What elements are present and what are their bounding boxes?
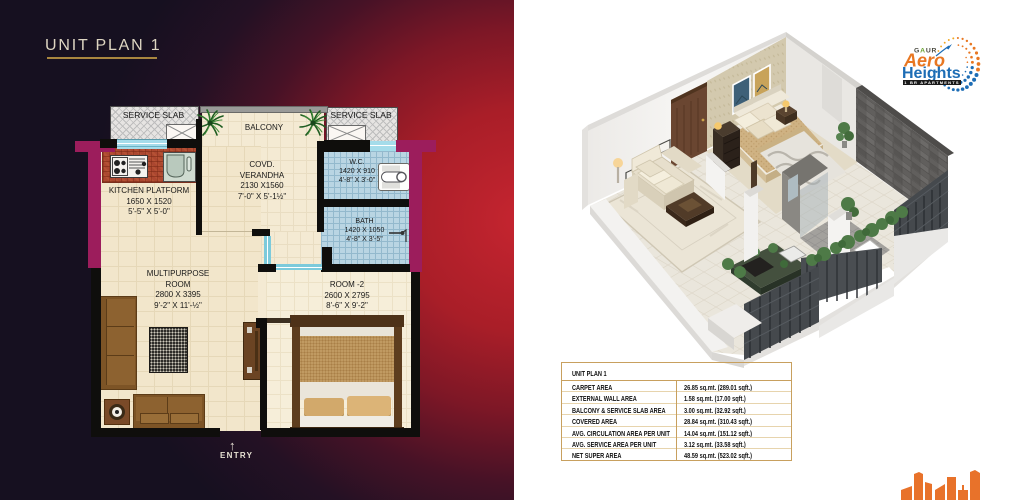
svg-text:1 BR APARTMENTS: 1 BR APARTMENTS — [904, 80, 960, 85]
